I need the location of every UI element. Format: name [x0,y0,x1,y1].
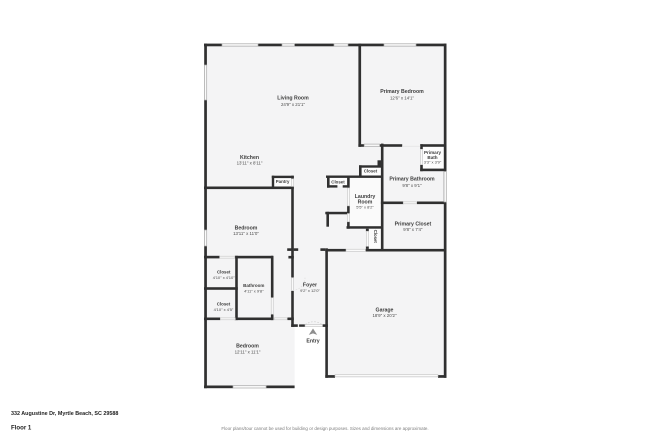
svg-text:Closet: Closet [331,179,345,184]
svg-text:9'8" x 7'4": 9'8" x 7'4" [403,227,423,232]
svg-text:Bathroom: Bathroom [243,283,264,288]
svg-text:13'11" x 11'0": 13'11" x 11'0" [233,231,259,236]
svg-text:Floor plans/tour cannot be use: Floor plans/tour cannot be used for buil… [221,426,428,431]
svg-text:Closet: Closet [217,301,231,306]
svg-text:Living Room: Living Room [277,96,309,102]
svg-text:Primary Bathroom: Primary Bathroom [389,177,435,183]
svg-text:12'11" x 11'1": 12'11" x 11'1" [235,350,261,355]
svg-text:13'11" x 8'11": 13'11" x 8'11" [237,160,263,165]
svg-text:Bedroom: Bedroom [236,343,259,349]
svg-text:4'10" x 4'5": 4'10" x 4'5" [214,307,234,312]
svg-text:Pantry: Pantry [276,179,290,184]
svg-text:Closet: Closet [217,269,231,274]
svg-text:Primary Bedroom: Primary Bedroom [380,89,424,95]
svg-text:Entry: Entry [306,338,319,344]
svg-text:Closet: Closet [364,169,378,174]
svg-text:332 Augustine Dr, Myrtle Beach: 332 Augustine Dr, Myrtle Beach, SC 29588 [11,411,118,417]
svg-text:24'9" x 21'1": 24'9" x 21'1" [281,102,306,107]
svg-text:Floor 1: Floor 1 [11,425,32,432]
svg-text:9'2" x 12'0": 9'2" x 12'0" [300,288,320,293]
svg-text:9'8" x 9'1": 9'8" x 9'1" [402,183,422,188]
svg-text:18'9" x 20'2": 18'9" x 20'2" [372,313,397,318]
svg-text:4'11" x 9'8": 4'11" x 9'8" [244,289,264,294]
svg-text:3'3" x 3'9": 3'3" x 3'9" [424,160,442,165]
svg-text:5'5" x 8'2": 5'5" x 8'2" [356,204,374,209]
svg-text:4'10" x 4'10": 4'10" x 4'10" [213,275,236,280]
svg-text:Closet: Closet [373,230,378,244]
svg-text:12'6" x 14'1": 12'6" x 14'1" [390,96,415,101]
